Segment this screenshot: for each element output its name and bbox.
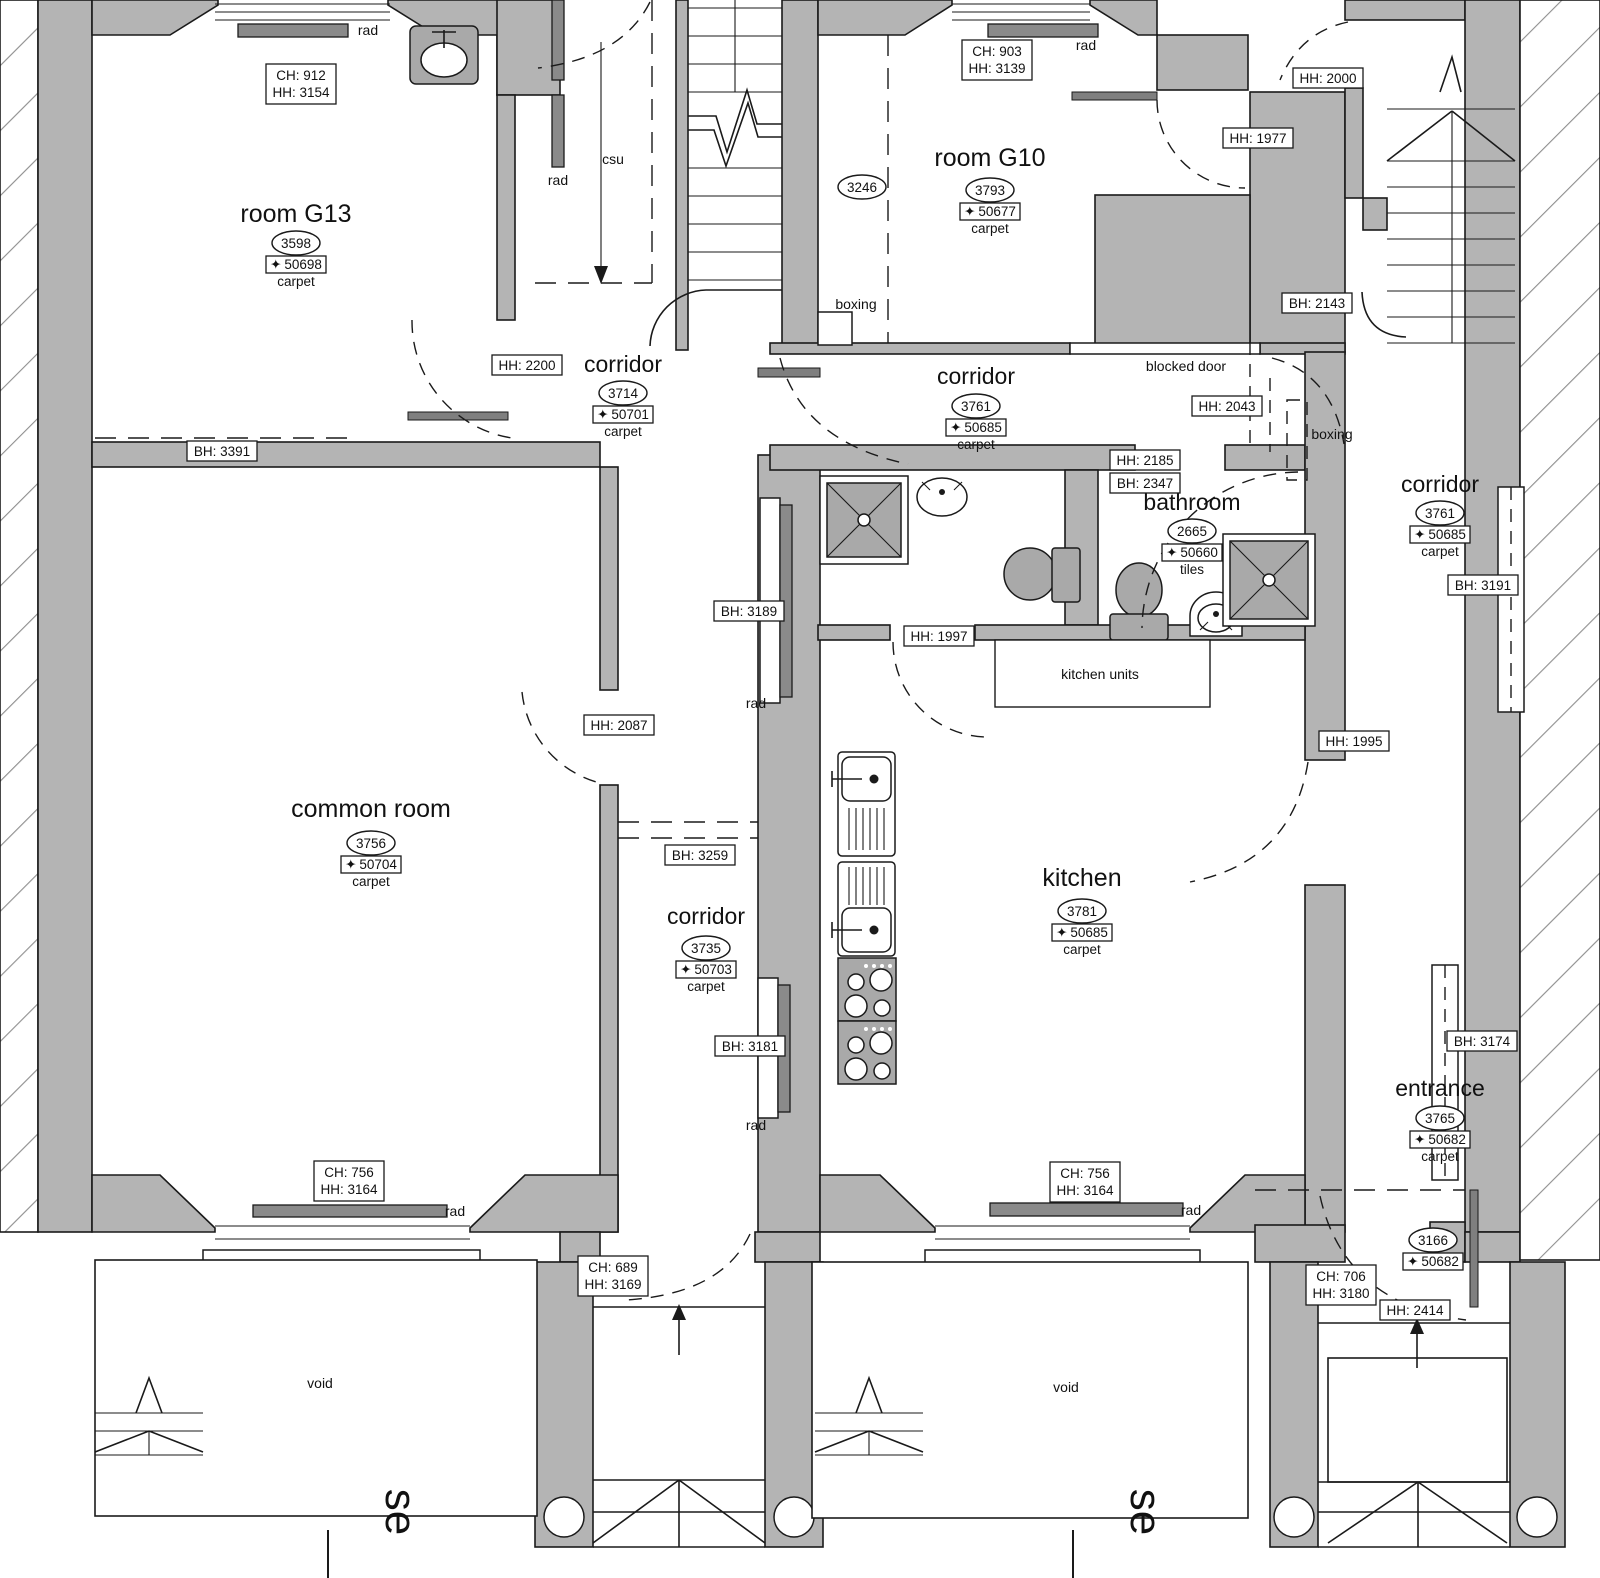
- floor-finish: carpet: [1421, 544, 1459, 559]
- room-name: kitchen: [1042, 864, 1121, 892]
- door-swing-arc: [893, 642, 988, 737]
- door-threshold-strip: [1072, 92, 1157, 100]
- room-area: 3714: [608, 386, 639, 401]
- hob-icon-2: [838, 1021, 896, 1084]
- room-area-secondary: 3246: [847, 180, 877, 195]
- measurement-box: HH: 1997: [904, 626, 974, 646]
- csu-label: csu: [602, 151, 624, 167]
- floor-finish: carpet: [1063, 942, 1101, 957]
- floor-plan-drawing: se se room G13 3598 ✦50698 carpet room G…: [0, 0, 1600, 1578]
- rad-label: rad: [445, 1203, 465, 1219]
- measurement-box: BH: 3391: [187, 441, 257, 461]
- svg-text:HH: 2185: HH: 2185: [1116, 453, 1173, 468]
- room-name: entrance: [1395, 1075, 1485, 1101]
- toilet-icon-shower-room: [1004, 548, 1080, 602]
- radiator: [253, 1205, 447, 1217]
- measurement-box: CH: 706 HH: 3180: [1306, 1265, 1376, 1305]
- measurement-box: HH: 2043: [1192, 396, 1262, 416]
- floor-finish: carpet: [1421, 1149, 1459, 1164]
- radiator: [238, 24, 348, 37]
- toilet-icon-bathroom: [1110, 563, 1168, 640]
- floor-level: ✦50685: [1056, 925, 1108, 940]
- shower-tray-icon-bathroom: [1223, 534, 1315, 626]
- room-name: corridor: [584, 351, 662, 377]
- boxing-label: boxing: [1311, 426, 1352, 442]
- svg-text:HH: 3154: HH: 3154: [272, 85, 330, 100]
- wall-radiators: [552, 0, 792, 1112]
- svg-text:HH: 2000: HH: 2000: [1299, 71, 1356, 86]
- floor-finish: carpet: [957, 437, 995, 452]
- svg-text:BH: 3189: BH: 3189: [721, 604, 777, 619]
- floor-level: ✦50685: [950, 420, 1002, 435]
- floor-level: ✦50698: [270, 257, 322, 272]
- floor-finish: tiles: [1180, 562, 1204, 577]
- measurement-box: BH: 3174: [1447, 1031, 1517, 1051]
- svg-text:HH: 3139: HH: 3139: [968, 61, 1025, 76]
- rad-label: rad: [746, 1117, 766, 1133]
- measurement-box: HH: 2185: [1110, 450, 1180, 470]
- room-area: 3761: [1425, 506, 1455, 521]
- blocked-door-label: blocked door: [1146, 358, 1227, 374]
- measurement-box: CH: 756 HH: 3164: [314, 1161, 384, 1201]
- room-area: 3761: [961, 399, 991, 414]
- floor-level: ✦50682: [1414, 1132, 1466, 1147]
- boxing-label: boxing: [835, 296, 876, 312]
- walls-left-unit: [38, 0, 820, 1262]
- measurement-box: HH: 1977: [1223, 128, 1293, 148]
- radiator: [552, 95, 564, 167]
- room-label-kitchen: kitchen 3781 ✦50685 carpet: [1042, 864, 1121, 957]
- room-name: corridor: [1401, 471, 1479, 497]
- party-wall-hatched-left: [0, 0, 38, 1232]
- floor-level: ✦50703: [680, 962, 732, 977]
- svg-text:BH: 2143: BH: 2143: [1289, 296, 1345, 311]
- measurement-box: CH: 903 HH: 3139: [962, 40, 1032, 80]
- hob-icon-1: [838, 958, 896, 1021]
- svg-text:BH: 3259: BH: 3259: [672, 848, 728, 863]
- arrow-down-icon: [594, 266, 608, 284]
- measurement-box: BH: 3181: [715, 1036, 785, 1056]
- rad-label: rad: [1076, 37, 1096, 53]
- svg-text:CH: 756: CH: 756: [324, 1165, 374, 1180]
- measurement-box: BH: 3191: [1448, 575, 1518, 595]
- measurement-box: BH: 3189: [714, 601, 784, 621]
- shower-tray-icon-left: [820, 476, 908, 564]
- rad-label: rad: [1181, 1202, 1201, 1218]
- svg-text:CH: 706: CH: 706: [1316, 1269, 1366, 1284]
- measurement-box: BH: 2347: [1110, 473, 1180, 493]
- kitchen-units-label: kitchen units: [1061, 666, 1139, 682]
- floor-level: ✦50677: [964, 204, 1016, 219]
- svg-text:HH: 2414: HH: 2414: [1386, 1303, 1444, 1318]
- svg-text:CH: 756: CH: 756: [1060, 1166, 1110, 1181]
- svg-text:HH: 3164: HH: 3164: [320, 1182, 378, 1197]
- bay-window-top-right: [952, 4, 1098, 37]
- stoop-left: [535, 1262, 823, 1547]
- svg-text:CH: 912: CH: 912: [276, 68, 326, 83]
- stairs-left: [650, 0, 782, 346]
- floor-level: ✦50682: [1407, 1254, 1459, 1269]
- svg-text:BH: 3191: BH: 3191: [1455, 578, 1511, 593]
- svg-text:HH: 2200: HH: 2200: [498, 358, 555, 373]
- void-area-right: [812, 1262, 1248, 1518]
- floor-finish: carpet: [687, 979, 725, 994]
- floor-level: ✦50685: [1414, 527, 1466, 542]
- measurement-box: HH: 2000: [1293, 68, 1363, 88]
- party-wall-hatched-right: [1520, 0, 1600, 1260]
- section-label: se: [1121, 1489, 1170, 1535]
- rad-label: rad: [548, 172, 568, 188]
- sink-icon-shower-room: [917, 478, 967, 516]
- room-name: corridor: [667, 903, 745, 929]
- floor-level: ✦50660: [1166, 545, 1218, 560]
- room-label-corridor-lower: corridor 3735 ✦50703 carpet: [667, 903, 745, 994]
- floor-plan-page: se se room G13 3598 ✦50698 carpet room G…: [0, 0, 1600, 1578]
- rad-label: rad: [746, 695, 766, 711]
- column-icon: [1517, 1497, 1557, 1537]
- svg-text:BH: 2347: BH: 2347: [1117, 476, 1173, 491]
- svg-text:HH: 3164: HH: 3164: [1056, 1183, 1114, 1198]
- room-area: 3765: [1425, 1111, 1455, 1126]
- room-area: 3781: [1067, 904, 1097, 919]
- room-area: 3756: [356, 836, 386, 851]
- door-threshold-strip: [758, 368, 820, 377]
- svg-text:BH: 3391: BH: 3391: [194, 444, 250, 459]
- stair-break-line: [1440, 57, 1461, 92]
- open-door-leaf: [1470, 1190, 1478, 1307]
- floor-level: ✦50701: [597, 407, 649, 422]
- kitchen-sink-icon-2: [832, 862, 895, 956]
- measurement-box: BH: 2143: [1282, 293, 1352, 313]
- svg-text:HH: 3169: HH: 3169: [584, 1277, 641, 1292]
- door-threshold-strip: [408, 412, 508, 420]
- room-area: 3793: [975, 183, 1005, 198]
- column-icon: [1274, 1497, 1314, 1537]
- sink-icon-g13: [410, 26, 478, 84]
- measurement-box: CH: 756 HH: 3164: [1050, 1162, 1120, 1202]
- radiator: [988, 24, 1098, 37]
- column-icon: [544, 1497, 584, 1537]
- measurement-box: BH: 3259: [665, 845, 735, 865]
- room-name: corridor: [937, 363, 1015, 389]
- floor-finish: carpet: [971, 221, 1009, 236]
- door-swing-arc: [522, 692, 600, 783]
- measurement-box: HH: 2087: [584, 715, 654, 735]
- section-label: se: [376, 1489, 425, 1535]
- radiator: [990, 1203, 1183, 1216]
- room-label-common: common room 3756 ✦50704 carpet: [291, 795, 451, 889]
- measurement-box: HH: 2414: [1380, 1300, 1450, 1320]
- room-label-corridor-upper-right: corridor 3761 ✦50685 carpet: [937, 363, 1015, 452]
- stair-handrail-curve: [1362, 292, 1406, 337]
- svg-text:CH: 689: CH: 689: [588, 1260, 638, 1275]
- svg-text:HH: 1995: HH: 1995: [1325, 734, 1382, 749]
- room-label-corridor-upper-left: corridor 3714 ✦50701 carpet: [584, 351, 662, 439]
- radiator: [552, 0, 564, 80]
- svg-text:HH: 1997: HH: 1997: [910, 629, 967, 644]
- floor-finish: carpet: [604, 424, 642, 439]
- room-area: 2665: [1177, 524, 1207, 539]
- measurement-box: HH: 2200: [492, 355, 562, 375]
- kitchen-sink-icon-1: [832, 752, 895, 856]
- column-icon: [774, 1497, 814, 1537]
- floor-level: ✦50704: [345, 857, 397, 872]
- stair-handrail-curve: [650, 290, 782, 346]
- void-label: void: [307, 1375, 333, 1391]
- room-area: 3598: [281, 236, 311, 251]
- measurement-box: CH: 689 HH: 3169: [578, 1256, 648, 1296]
- svg-text:BH: 3174: BH: 3174: [1454, 1034, 1511, 1049]
- svg-text:HH: 2087: HH: 2087: [590, 718, 647, 733]
- svg-text:CH: 903: CH: 903: [972, 44, 1022, 59]
- rad-label: rad: [358, 22, 378, 38]
- measurement-box: HH: 1995: [1319, 731, 1389, 751]
- room-name: common room: [291, 795, 451, 823]
- room-area: 3166: [1418, 1233, 1448, 1248]
- room-name: room G13: [240, 200, 351, 228]
- floor-finish: carpet: [352, 874, 390, 889]
- door-swing-arc: [1190, 762, 1308, 882]
- room-label-g13: room G13 3598 ✦50698 carpet: [240, 200, 351, 289]
- floor-finish: carpet: [277, 274, 315, 289]
- svg-text:HH: 3180: HH: 3180: [1312, 1286, 1369, 1301]
- svg-text:BH: 3181: BH: 3181: [722, 1039, 778, 1054]
- room-area: 3735: [691, 941, 721, 956]
- svg-text:HH: 1977: HH: 1977: [1229, 131, 1286, 146]
- measurement-box: CH: 912 HH: 3154: [266, 64, 336, 104]
- void-label: void: [1053, 1379, 1079, 1395]
- room-name: room G10: [934, 144, 1045, 172]
- room-label-g10: room G10 3793 ✦50677 carpet 3246: [838, 144, 1046, 236]
- svg-text:HH: 2043: HH: 2043: [1198, 399, 1255, 414]
